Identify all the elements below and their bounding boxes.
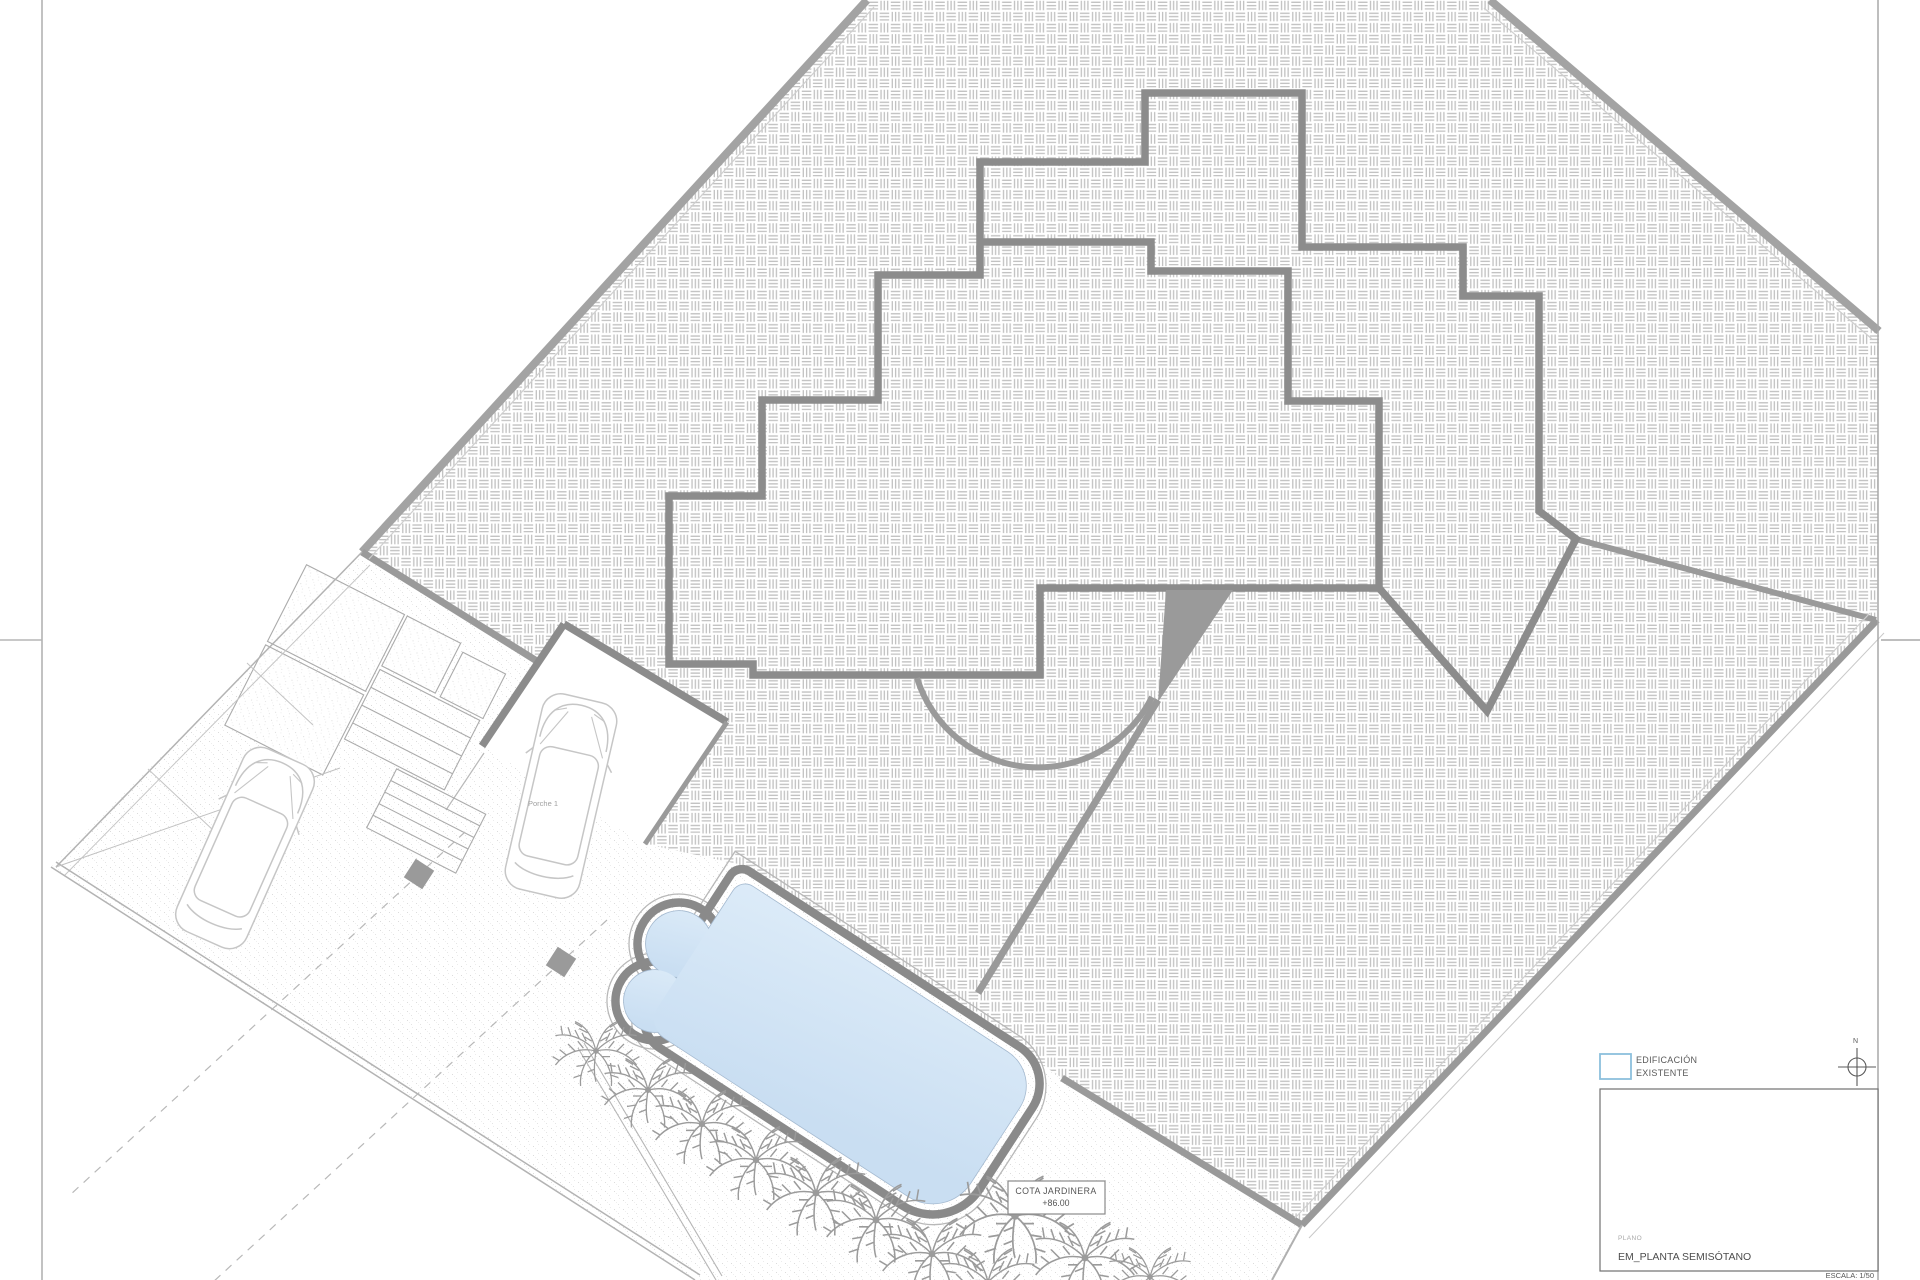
svg-text:COTA JARDINERA: COTA JARDINERA xyxy=(1015,1186,1096,1196)
svg-text:ESCALA: 1/50: ESCALA: 1/50 xyxy=(1826,1271,1874,1280)
svg-text:EDIFICACIÓN: EDIFICACIÓN xyxy=(1636,1055,1697,1065)
svg-text:EXISTENTE: EXISTENTE xyxy=(1636,1068,1689,1078)
svg-text:+86.00: +86.00 xyxy=(1042,1198,1069,1208)
svg-text:N: N xyxy=(1853,1038,1858,1045)
svg-text:EM_PLANTA SEMISÓTANO: EM_PLANTA SEMISÓTANO xyxy=(1618,1250,1751,1263)
svg-text:PLANO: PLANO xyxy=(1618,1235,1642,1242)
svg-text:Porche 1: Porche 1 xyxy=(528,799,558,808)
